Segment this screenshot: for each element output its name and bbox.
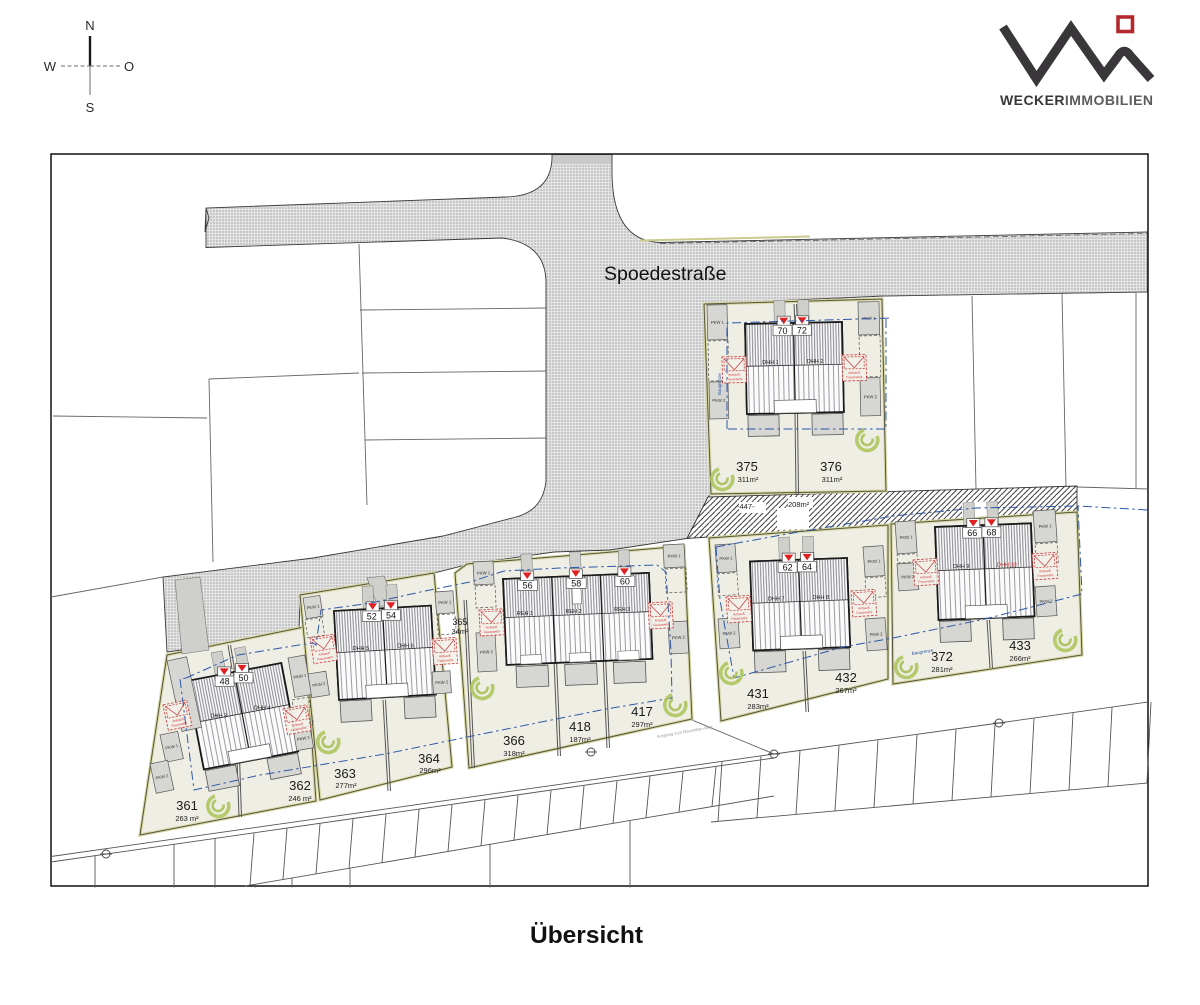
svg-text:DHH 10: DHH 10: [997, 562, 1017, 568]
svg-text:Baugrenze: Baugrenze: [717, 373, 722, 395]
svg-text:296m²: 296m²: [419, 766, 441, 775]
svg-text:281m²: 281m²: [931, 665, 953, 674]
svg-text:417: 417: [631, 704, 653, 719]
svg-text:362: 362: [289, 778, 311, 793]
svg-text:PKW 2: PKW 2: [480, 649, 494, 655]
svg-text:Spoedestraße: Spoedestraße: [604, 263, 727, 285]
svg-text:432: 432: [835, 670, 857, 685]
svg-text:363: 363: [334, 766, 356, 781]
svg-text:O: O: [124, 59, 134, 74]
svg-text:Übersicht: Übersicht: [530, 922, 643, 949]
svg-text:52: 52: [367, 612, 377, 622]
svg-text:DHH 8: DHH 8: [813, 595, 830, 601]
svg-text:PKW 1: PKW 1: [1038, 523, 1052, 529]
svg-text:REH 2: REH 2: [566, 609, 582, 615]
svg-text:DHH 7: DHH 7: [768, 597, 785, 603]
svg-text:PKW 1: PKW 1: [477, 570, 491, 576]
svg-text:58: 58: [571, 579, 581, 589]
svg-text:-447-: -447-: [737, 502, 755, 511]
svg-text:48: 48: [220, 677, 230, 687]
svg-text:60: 60: [620, 577, 630, 587]
svg-text:PKW 1: PKW 1: [667, 553, 681, 559]
svg-text:364: 364: [418, 751, 440, 766]
svg-text:PKW 1: PKW 1: [719, 555, 733, 561]
svg-text:376: 376: [820, 459, 842, 474]
svg-text:PKW 2: PKW 2: [712, 398, 726, 403]
svg-text:246 m²: 246 m²: [288, 794, 312, 803]
svg-text:70: 70: [777, 326, 787, 336]
svg-text:PKW 1: PKW 1: [438, 599, 452, 605]
svg-text:56: 56: [523, 581, 533, 591]
svg-text:WECKERIMMOBILIEN: WECKERIMMOBILIEN: [1000, 92, 1153, 108]
svg-text:64: 64: [802, 562, 812, 572]
svg-text:DHH 9: DHH 9: [953, 564, 970, 570]
svg-text:66: 66: [967, 528, 977, 538]
svg-text:266m²: 266m²: [1009, 654, 1031, 663]
svg-text:277m²: 277m²: [335, 781, 357, 790]
svg-text:267m²: 267m²: [835, 686, 857, 695]
svg-text:DHH 6: DHH 6: [397, 643, 414, 649]
svg-text:375: 375: [736, 459, 758, 474]
svg-text:S: S: [86, 100, 95, 115]
svg-text:318m²: 318m²: [503, 749, 525, 758]
svg-text:72: 72: [797, 325, 807, 335]
svg-text:PKW 2: PKW 2: [1039, 598, 1053, 604]
svg-text:PKW 2: PKW 2: [869, 631, 883, 637]
svg-text:361: 361: [176, 798, 198, 813]
svg-text:PKW 2: PKW 2: [901, 574, 915, 580]
svg-text:REH 3: REH 3: [614, 607, 630, 613]
svg-text:DHH 2: DHH 2: [807, 359, 824, 365]
svg-text:187m²: 187m²: [569, 735, 591, 744]
svg-text:34m²: 34m²: [451, 627, 469, 636]
svg-text:263 m²: 263 m²: [175, 814, 199, 823]
svg-text:50: 50: [238, 673, 248, 683]
svg-text:DHH 3: DHH 3: [211, 714, 228, 720]
svg-text:W: W: [44, 59, 57, 74]
svg-text:PKW 1: PKW 1: [899, 534, 913, 540]
svg-text:REH 1: REH 1: [517, 611, 533, 617]
svg-text:54: 54: [386, 610, 396, 620]
svg-text:N: N: [85, 18, 94, 33]
svg-text:283m²: 283m²: [747, 702, 769, 711]
svg-text:DHH 4: DHH 4: [254, 705, 271, 711]
svg-text:297m²: 297m²: [631, 720, 653, 729]
svg-text:372: 372: [931, 649, 953, 664]
svg-text:62: 62: [783, 563, 793, 573]
svg-text:365: 365: [452, 617, 467, 627]
svg-text:PKW 1: PKW 1: [711, 320, 725, 325]
svg-text:208m²: 208m²: [788, 500, 810, 509]
svg-text:PKW 2: PKW 2: [864, 394, 878, 399]
svg-text:366: 366: [503, 733, 525, 748]
svg-text:68: 68: [986, 527, 996, 537]
svg-text:433: 433: [1009, 638, 1031, 653]
svg-text:431: 431: [747, 686, 769, 701]
svg-text:DHH 5: DHH 5: [353, 646, 370, 652]
svg-text:PKW 2: PKW 2: [722, 630, 736, 636]
svg-text:PKW 2: PKW 2: [435, 679, 449, 685]
svg-text:311m²: 311m²: [738, 475, 759, 484]
svg-text:PKW 1: PKW 1: [867, 558, 881, 564]
svg-text:DHH 1: DHH 1: [762, 360, 779, 366]
svg-text:311m²: 311m²: [822, 475, 843, 484]
svg-text:418: 418: [569, 719, 591, 734]
svg-text:PKW 2: PKW 2: [672, 635, 686, 641]
